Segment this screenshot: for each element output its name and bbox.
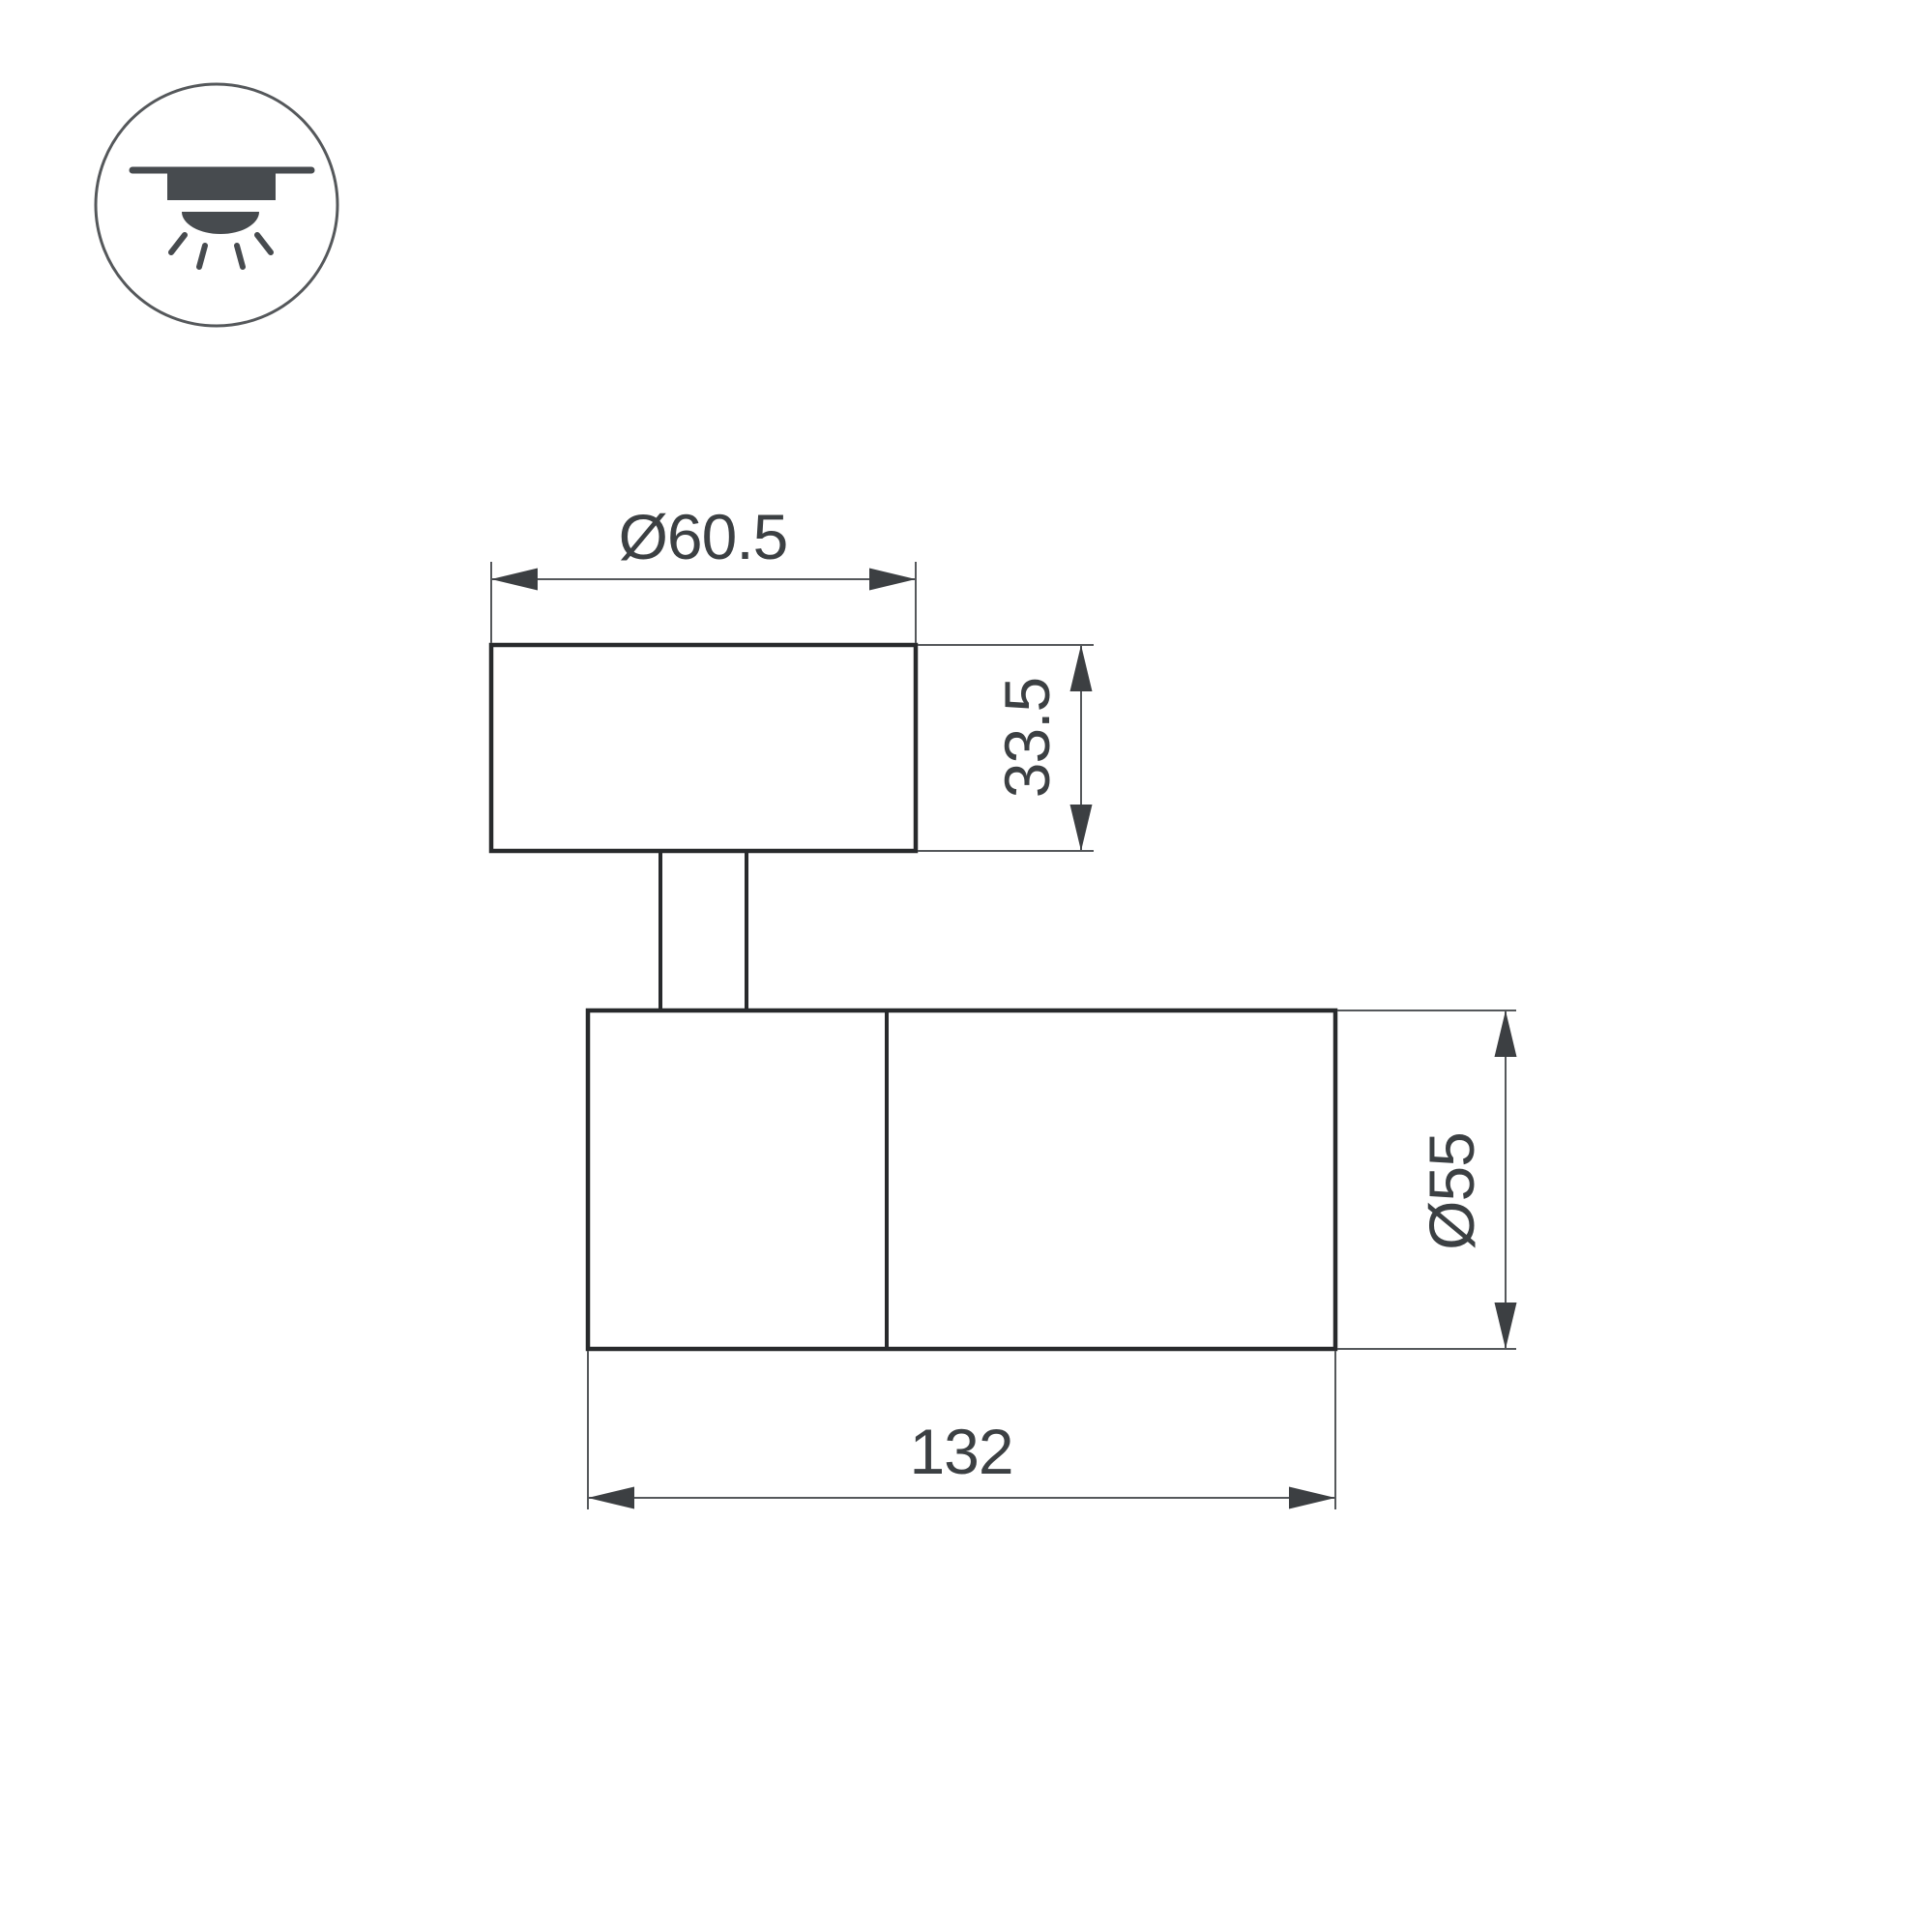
arrowhead-down-icon <box>1495 1303 1517 1349</box>
dimension-label-body-diameter: Ø55 <box>1416 1132 1487 1250</box>
luminaire-outline <box>491 645 1335 1349</box>
arrowhead-up-icon <box>1070 645 1093 691</box>
arrowhead-left-icon <box>491 569 538 591</box>
dimension-base-diameter: Ø60.5 <box>491 501 916 643</box>
technical-drawing-page: Ø60.5 33.5 Ø55 132 <box>0 0 1932 1932</box>
arrowhead-down-icon <box>1070 805 1093 851</box>
dimension-body-length: 132 <box>588 1351 1335 1509</box>
luminaire-dimension-drawing: Ø60.5 33.5 Ø55 132 <box>0 0 1932 1932</box>
mount-base-outline <box>491 645 916 851</box>
mounting-type-icon <box>96 84 337 326</box>
dimension-label-base-diameter: Ø60.5 <box>619 501 788 572</box>
arrowhead-right-icon <box>869 569 916 591</box>
icon-circle-border <box>96 84 337 326</box>
dimension-base-height: 33.5 <box>918 645 1094 851</box>
dimension-label-base-height: 33.5 <box>991 678 1063 798</box>
dimension-label-body-length: 132 <box>909 1416 1012 1487</box>
lamp-body-outline <box>588 1010 1335 1349</box>
icon-fixture-housing <box>167 170 276 200</box>
arrowhead-left-icon <box>588 1487 634 1509</box>
dimension-body-diameter: Ø55 <box>1337 1010 1517 1349</box>
arrowhead-right-icon <box>1289 1487 1335 1509</box>
arrowhead-up-icon <box>1495 1010 1517 1057</box>
